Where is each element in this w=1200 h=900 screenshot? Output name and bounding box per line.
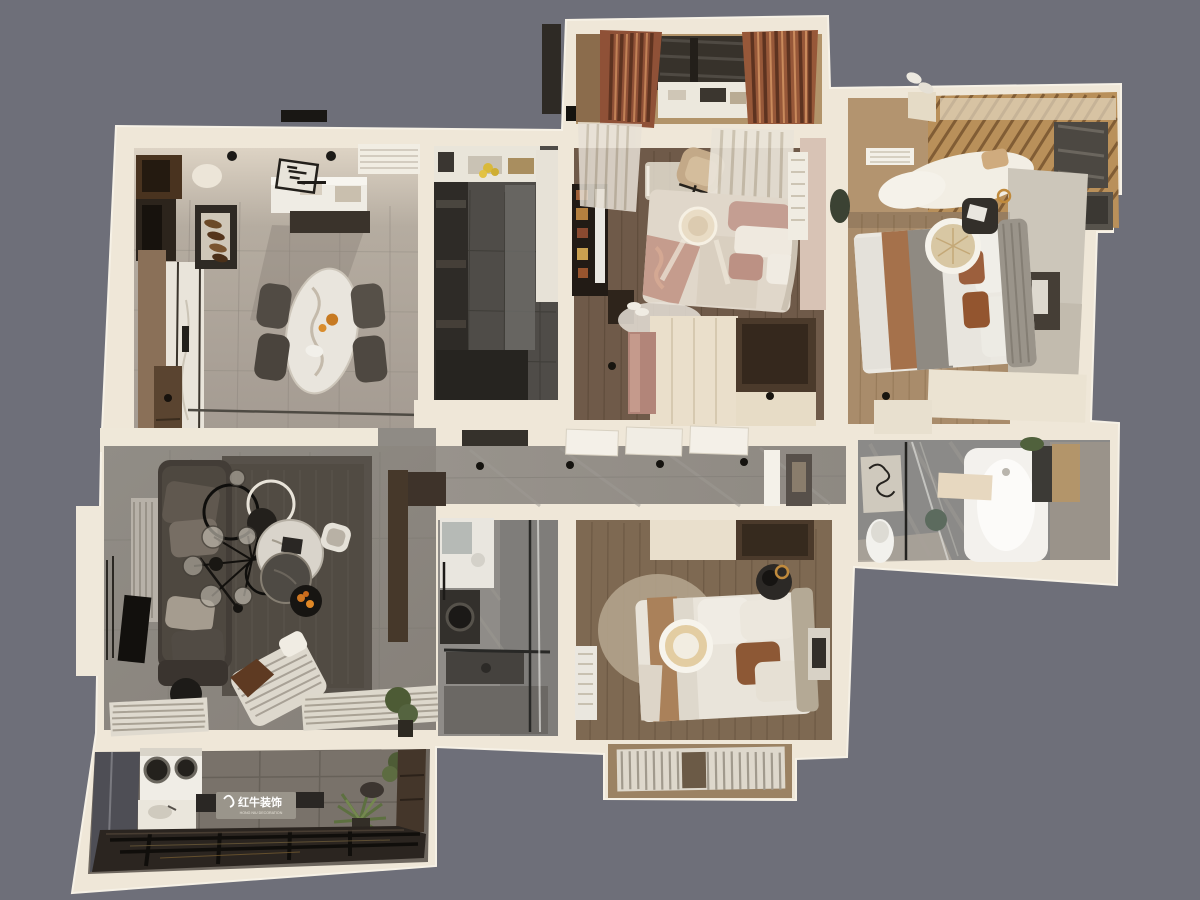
svg-text:红牛装饰: 红牛装饰 [238, 795, 282, 809]
svg-text:HONG NIU DECORATION: HONG NIU DECORATION [240, 811, 283, 815]
